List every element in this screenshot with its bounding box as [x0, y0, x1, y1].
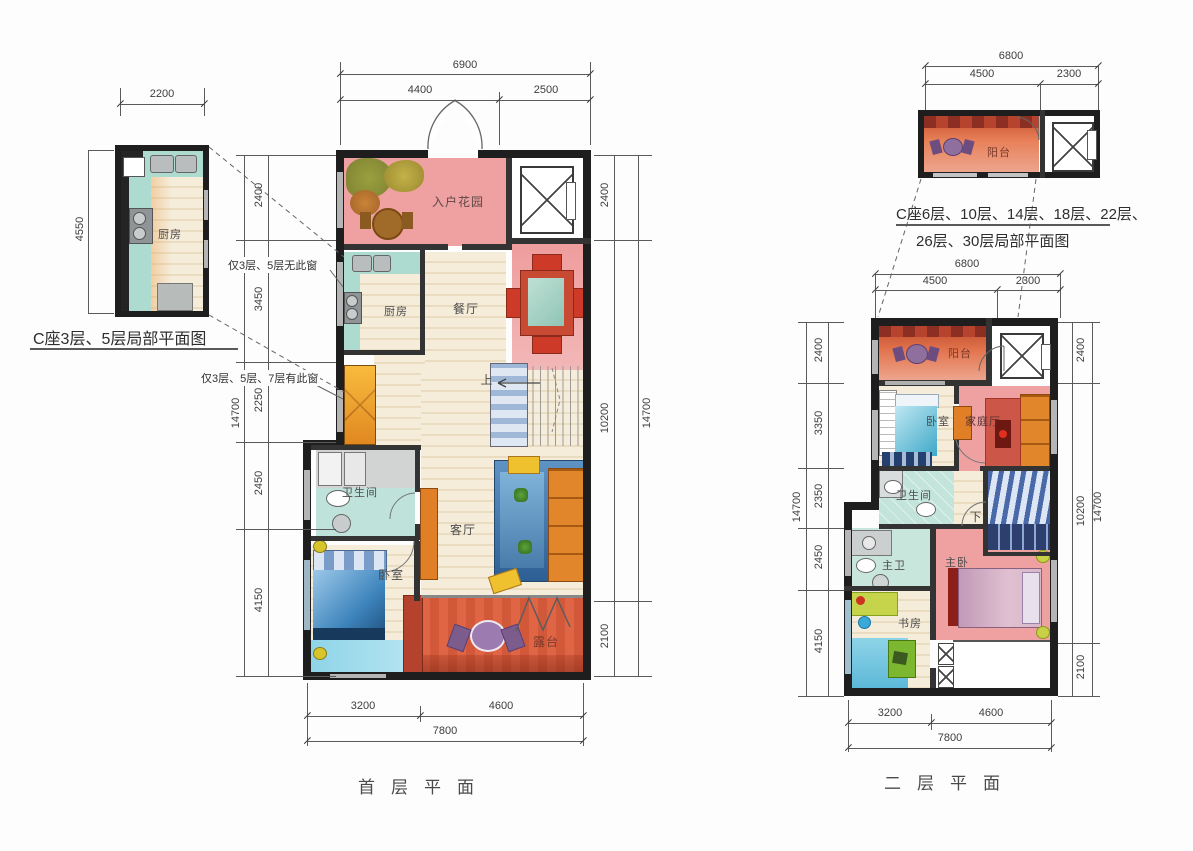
- dim-ext: [594, 676, 652, 677]
- room-label-balcony: 阳台: [936, 345, 984, 361]
- dim-label: 4600: [466, 700, 536, 712]
- dim-label: 14700: [1092, 477, 1104, 537]
- entry-door-arc: [428, 100, 456, 149]
- room-label-bathroom2: 卫生间: [884, 487, 944, 503]
- dim-label: 2350: [813, 466, 825, 526]
- floor-plan-sheet: 2200 4550 厨房 C座3层、5层局部平面图 6900 4400 2500: [0, 0, 1193, 851]
- dim-label: 10200: [1075, 481, 1087, 541]
- dim-label: 6800: [932, 258, 1002, 270]
- caption-underline: [896, 224, 1110, 226]
- dim-label: 4500: [947, 68, 1017, 80]
- room-label-master-bedroom: 主卧: [933, 554, 981, 570]
- room-label-balcony: 阳台: [975, 144, 1023, 160]
- dim-ext: [1058, 383, 1100, 384]
- dim-label: 2200: [127, 88, 197, 100]
- dim-label: 2450: [253, 453, 265, 513]
- dim-ext: [88, 313, 114, 314]
- dim-ext: [848, 700, 849, 752]
- dim-ext: [875, 274, 876, 318]
- room-label-entry-garden: 入户花园: [408, 193, 508, 210]
- dim-label: 4150: [253, 570, 265, 630]
- dim-ext: [798, 696, 844, 697]
- dim-line: [614, 155, 615, 676]
- room-label-bedroom2: 卧室: [914, 413, 962, 429]
- dim-ext: [236, 155, 336, 156]
- dim-line: [307, 716, 583, 717]
- detail-caption: C座3层、5层局部平面图: [33, 325, 206, 349]
- dim-label: 7800: [410, 725, 480, 737]
- dim-ext: [1040, 84, 1041, 110]
- dim-ext: [798, 383, 844, 384]
- dim-label: 2100: [599, 606, 611, 666]
- dim-label: 6900: [430, 59, 500, 71]
- dim-line: [268, 155, 269, 676]
- room-label-bathroom: 卫生间: [330, 484, 390, 500]
- room-label-dining: 餐厅: [442, 300, 490, 317]
- dim-ext: [1051, 700, 1052, 752]
- dim-label: 14700: [791, 477, 803, 537]
- dim-line: [340, 100, 590, 101]
- note-leader: [330, 270, 343, 287]
- dim-line: [307, 741, 583, 742]
- dashed-connector: [878, 179, 921, 317]
- dim-label: 2400: [1075, 320, 1087, 380]
- window-note: 仅3层、5层、7层有此窗: [199, 370, 320, 386]
- elevator-door: [1041, 344, 1051, 370]
- room-label-study: 书房: [886, 615, 934, 631]
- detail-caption-line2: 26层、30层局部平面图: [916, 230, 1069, 251]
- dim-label: 4150: [813, 611, 825, 671]
- dim-line: [1072, 322, 1073, 696]
- dim-line: [925, 84, 1098, 85]
- stair-break-line: [552, 368, 560, 432]
- dim-label: 7800: [915, 732, 985, 744]
- dim-label: 2100: [1075, 637, 1087, 697]
- room-label-living: 客厅: [439, 521, 487, 538]
- dim-line: [875, 290, 1060, 291]
- dim-line: [244, 155, 245, 676]
- dim-label: 3200: [855, 707, 925, 719]
- room-label-kitchen: 厨房: [146, 226, 194, 242]
- elevator-door: [566, 182, 576, 220]
- dim-label: 10200: [599, 388, 611, 448]
- elevator-door: [1087, 130, 1097, 160]
- room-label-master-bath: 主卫: [870, 557, 918, 573]
- dim-label: 3350: [813, 393, 825, 453]
- dim-label: 3200: [328, 700, 398, 712]
- dim-label: 2300: [993, 275, 1063, 287]
- door-arc: [1017, 116, 1039, 140]
- room-label-kitchen: 厨房: [372, 303, 420, 319]
- dim-label: 6800: [976, 50, 1046, 62]
- folding-door-zigzag: [516, 598, 570, 631]
- dim-label: 2400: [253, 165, 265, 225]
- dim-label: 2500: [511, 84, 581, 96]
- dim-ext: [236, 442, 336, 443]
- dim-ext: [798, 590, 844, 591]
- door-arc: [956, 440, 985, 463]
- dim-ext: [236, 529, 336, 530]
- dim-label: 4550: [74, 199, 86, 259]
- dim-ext: [594, 240, 652, 241]
- dim-line: [806, 322, 807, 696]
- dim-label: 14700: [641, 383, 653, 443]
- plan-title-second-floor: 二层平面: [850, 769, 1050, 794]
- dim-label: 2450: [813, 527, 825, 587]
- room-label-terrace: 露台: [522, 633, 570, 650]
- dim-label: 4400: [385, 84, 455, 96]
- dim-ext: [236, 362, 336, 363]
- dim-ext: [925, 66, 926, 110]
- dim-label: 2400: [813, 320, 825, 380]
- dim-line: [848, 723, 1051, 724]
- dim-ext: [88, 150, 114, 151]
- dim-ext: [594, 601, 652, 602]
- stairs-up-label: 上: [475, 371, 499, 388]
- window-note: 仅3层、5层无此窗: [226, 257, 319, 273]
- dim-label: 4500: [900, 275, 970, 287]
- dim-label: 4600: [956, 707, 1026, 719]
- dim-line: [340, 74, 590, 75]
- dim-line: [88, 150, 89, 313]
- detail-caption-line1: C座6层、10层、14层、18层、22层、: [896, 203, 1116, 224]
- dim-line: [925, 66, 1098, 67]
- dim-label: 3450: [253, 269, 265, 329]
- dim-label: 2400: [599, 165, 611, 225]
- dim-ext: [236, 240, 336, 241]
- room-label-bedroom: 卧室: [367, 566, 415, 583]
- dim-ext: [236, 676, 336, 677]
- dim-line: [848, 748, 1051, 749]
- stairs-down-label: 下: [964, 508, 988, 525]
- dim-label: 14700: [230, 383, 242, 443]
- dim-ext: [594, 155, 652, 156]
- dim-label: 2300: [1034, 68, 1104, 80]
- dim-ext: [997, 290, 998, 318]
- stairs-up-arrow: [498, 379, 540, 387]
- door-arc: [390, 493, 415, 519]
- dim-line: [828, 322, 829, 696]
- plan-title-first-floor: 首层平面: [324, 773, 524, 798]
- dim-line: [120, 104, 204, 105]
- entry-door-arc: [454, 100, 482, 149]
- room-label-family: 家庭厅: [958, 413, 1008, 429]
- dim-line: [638, 155, 639, 676]
